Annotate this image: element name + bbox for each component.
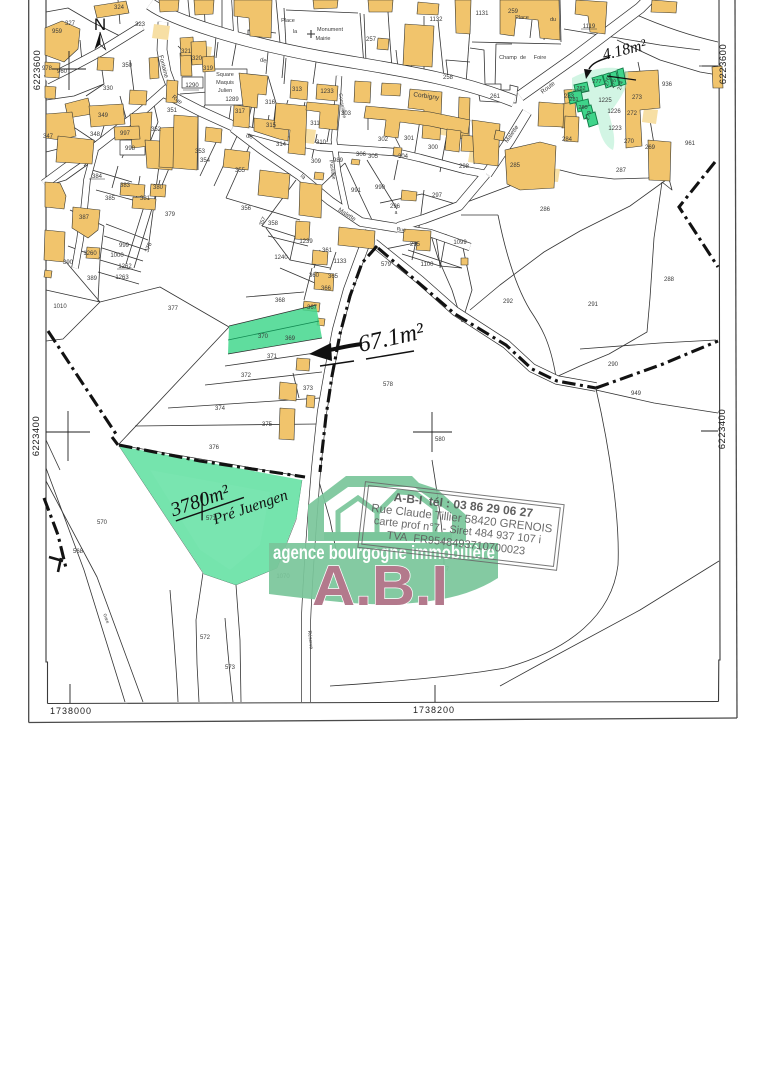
svg-text:6223600: 6223600 — [718, 44, 729, 84]
svg-text:991: 991 — [351, 188, 362, 194]
svg-text:961: 961 — [685, 141, 696, 147]
svg-text:305: 305 — [368, 154, 379, 160]
svg-text:990: 990 — [375, 185, 386, 191]
svg-text:960: 960 — [57, 69, 68, 75]
svg-text:290: 290 — [608, 362, 619, 368]
svg-text:284: 284 — [562, 137, 573, 143]
svg-text:997: 997 — [120, 131, 131, 137]
svg-text:321: 321 — [181, 49, 192, 55]
svg-text:369: 369 — [285, 336, 296, 342]
svg-text:348: 348 — [90, 132, 101, 138]
svg-text:573: 573 — [225, 665, 236, 671]
svg-text:1000: 1000 — [110, 253, 124, 259]
svg-text:349: 349 — [98, 113, 109, 119]
svg-text:Champ: Champ — [499, 55, 517, 61]
svg-text:1133: 1133 — [334, 259, 348, 265]
svg-text:1289: 1289 — [225, 97, 239, 103]
svg-text:1100: 1100 — [421, 262, 435, 268]
svg-text:270: 270 — [624, 139, 635, 145]
svg-text:286: 286 — [540, 207, 551, 213]
svg-text:1225: 1225 — [598, 98, 612, 104]
svg-text:367: 367 — [307, 305, 318, 311]
svg-text:380: 380 — [153, 185, 164, 191]
svg-text:372: 372 — [241, 373, 252, 379]
svg-text:295: 295 — [410, 242, 421, 248]
svg-text:347: 347 — [43, 134, 54, 140]
svg-text:309: 309 — [311, 159, 322, 165]
svg-text:317: 317 — [235, 109, 246, 115]
svg-text:578: 578 — [383, 382, 394, 388]
svg-text:360: 360 — [309, 273, 320, 279]
svg-text:1233: 1233 — [320, 89, 334, 95]
svg-text:269: 269 — [645, 145, 656, 151]
svg-text:361: 361 — [322, 248, 333, 254]
svg-text:313: 313 — [292, 87, 303, 93]
svg-text:356: 356 — [241, 206, 252, 212]
svg-text:1132: 1132 — [430, 17, 444, 23]
svg-text:323: 323 — [135, 22, 146, 28]
svg-text:387: 387 — [79, 215, 90, 221]
svg-text:Julien: Julien — [218, 88, 232, 94]
svg-text:298: 298 — [459, 164, 470, 170]
svg-text:280: 280 — [578, 105, 587, 111]
svg-text:354: 354 — [200, 158, 211, 164]
svg-text:319: 319 — [203, 66, 214, 72]
svg-text:302: 302 — [378, 137, 389, 143]
svg-text:370: 370 — [258, 334, 269, 340]
svg-text:1263: 1263 — [115, 275, 129, 281]
svg-text:379: 379 — [165, 212, 176, 218]
svg-text:999: 999 — [119, 243, 130, 249]
svg-text:310: 310 — [316, 140, 327, 146]
svg-text:281: 281 — [569, 97, 578, 103]
svg-text:Monument: Monument — [317, 27, 343, 33]
svg-text:351: 351 — [167, 108, 178, 114]
svg-text:1290: 1290 — [185, 83, 199, 89]
svg-text:304: 304 — [398, 154, 409, 160]
svg-text:959: 959 — [52, 29, 63, 35]
svg-text:383: 383 — [120, 183, 131, 189]
svg-text:375: 375 — [262, 422, 273, 428]
svg-text:261: 261 — [490, 94, 501, 100]
svg-text:311: 311 — [310, 121, 320, 127]
svg-text:320: 320 — [192, 56, 203, 62]
svg-text:390: 390 — [63, 260, 74, 266]
svg-text:301: 301 — [404, 136, 415, 142]
svg-text:1738200: 1738200 — [413, 705, 455, 715]
svg-text:376: 376 — [209, 445, 220, 451]
svg-text:353: 353 — [195, 149, 206, 155]
svg-text:352: 352 — [151, 127, 162, 133]
svg-text:315: 315 — [266, 123, 277, 129]
svg-text:936: 936 — [662, 82, 673, 88]
svg-text:300: 300 — [428, 145, 439, 151]
svg-text:377: 377 — [168, 306, 179, 312]
svg-text:568: 568 — [73, 549, 84, 555]
svg-text:Place: Place — [515, 15, 529, 21]
svg-text:949: 949 — [631, 391, 642, 397]
svg-text:1239: 1239 — [299, 239, 313, 245]
svg-text:258: 258 — [443, 75, 454, 81]
svg-text:292: 292 — [503, 299, 514, 305]
svg-text:371: 371 — [267, 354, 278, 360]
svg-text:1260: 1260 — [83, 251, 97, 257]
svg-text:998: 998 — [125, 146, 136, 152]
svg-text:287: 287 — [616, 168, 627, 174]
svg-text:580: 580 — [435, 437, 446, 443]
svg-text:6223400: 6223400 — [31, 416, 42, 456]
svg-text:374: 374 — [215, 406, 226, 412]
svg-text:297: 297 — [432, 193, 443, 199]
svg-text:355: 355 — [235, 168, 246, 174]
svg-text:272: 272 — [627, 111, 638, 117]
svg-text:Square: Square — [216, 72, 234, 78]
svg-text:381: 381 — [140, 196, 151, 202]
svg-text:358: 358 — [268, 221, 279, 227]
svg-text:365: 365 — [328, 274, 339, 280]
svg-text:A.B.I: A.B.I — [312, 554, 448, 618]
svg-text:1099: 1099 — [453, 240, 467, 246]
svg-text:1226: 1226 — [607, 109, 621, 115]
svg-text:314: 314 — [276, 142, 287, 148]
svg-text:288: 288 — [664, 277, 675, 283]
svg-text:Place: Place — [281, 18, 295, 24]
svg-text:277: 277 — [592, 79, 601, 85]
svg-text:366: 366 — [321, 286, 332, 292]
svg-text:978: 978 — [42, 66, 53, 72]
svg-text:6223600: 6223600 — [32, 50, 43, 90]
svg-text:a: a — [395, 210, 398, 216]
svg-text:1131: 1131 — [476, 11, 490, 17]
svg-text:579: 579 — [381, 262, 392, 268]
svg-text:350: 350 — [122, 63, 133, 69]
svg-text:de: de — [520, 55, 526, 61]
svg-text:Mairie: Mairie — [316, 36, 331, 42]
svg-text:327: 327 — [65, 21, 76, 27]
svg-text:285: 285 — [510, 163, 521, 169]
svg-text:du: du — [550, 17, 556, 23]
svg-text:Foire: Foire — [534, 55, 547, 61]
svg-text:389: 389 — [87, 276, 98, 282]
svg-text:257: 257 — [366, 37, 377, 43]
svg-text:1240: 1240 — [274, 255, 288, 261]
svg-text:368: 368 — [275, 298, 286, 304]
svg-text:N: N — [94, 15, 106, 34]
svg-text:6223400: 6223400 — [717, 409, 728, 449]
svg-text:316: 316 — [265, 100, 276, 106]
svg-text:571: 571 — [206, 516, 217, 522]
svg-text:373: 373 — [303, 386, 314, 392]
svg-text:273: 273 — [632, 95, 643, 101]
svg-text:1010: 1010 — [53, 304, 67, 310]
svg-text:306: 306 — [356, 152, 367, 158]
svg-text:324: 324 — [114, 5, 125, 11]
svg-text:572: 572 — [200, 635, 211, 641]
svg-text:385: 385 — [105, 196, 116, 202]
svg-text:330: 330 — [103, 86, 114, 92]
svg-text:1223: 1223 — [608, 126, 622, 132]
svg-text:570: 570 — [97, 520, 108, 526]
svg-text:1738000: 1738000 — [50, 706, 92, 716]
svg-text:Maquis: Maquis — [216, 80, 234, 86]
svg-text:291: 291 — [588, 302, 599, 308]
